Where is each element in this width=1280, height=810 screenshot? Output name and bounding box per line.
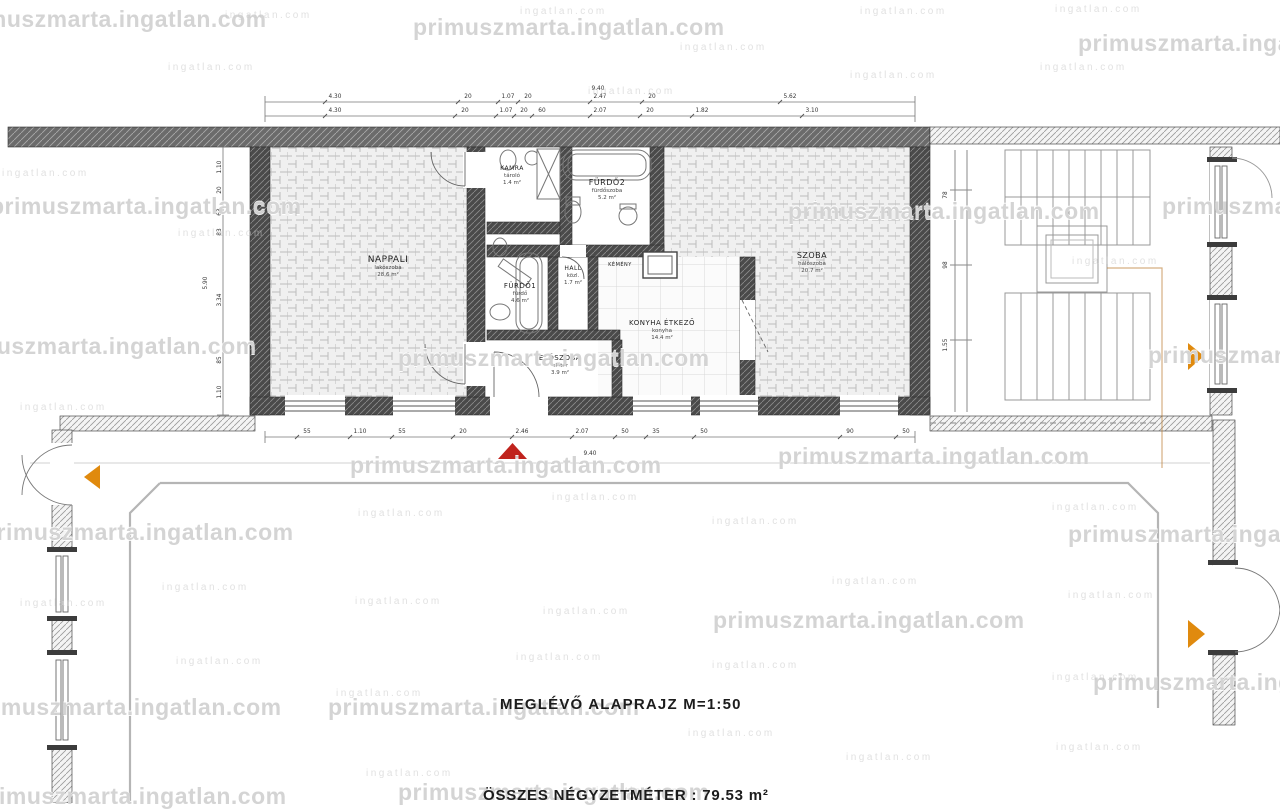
dimension-number: 2.07 [576, 429, 589, 435]
stairwell-separation-wall [910, 147, 930, 415]
dimension-number: 1.10 [217, 160, 223, 173]
orange-arrow-left [84, 465, 100, 489]
room-label: FÜRDŐ1 [504, 281, 536, 290]
dimension-number: 1.82 [696, 108, 709, 114]
dimension-number: 20 [461, 108, 469, 114]
dimension-number: 4.30 [329, 94, 342, 100]
left-flat-wall [250, 147, 270, 415]
orange-arrow-right-upper [1188, 343, 1204, 370]
room-sublabel: 3.9 m² [551, 369, 569, 376]
courtyard-outline [30, 463, 1210, 803]
dimension-number: 5.62 [784, 94, 797, 100]
room-label: HALL [564, 265, 581, 272]
sink-furdo1 [490, 304, 510, 320]
dimension-number: 83 [217, 228, 223, 236]
dimension-number: 1.55 [943, 338, 949, 351]
room-label: NAPPALI [368, 255, 409, 265]
nappali-floor [270, 147, 467, 397]
dimension-number: 2.46 [516, 429, 529, 435]
floor-plan-image: NAPPALIlakószoba28.6 m²KAMRAtároló1.4 m²… [0, 0, 1280, 803]
dimension-number: 50 [902, 429, 910, 435]
room-sublabel: 1.7 m² [564, 279, 582, 286]
room-sublabel: 28.6 m² [377, 271, 399, 278]
dimension-number: 60 [538, 108, 546, 114]
plan-title: MEGLÉVŐ ALAPRAJZ M=1:50 [500, 696, 742, 713]
dimension-number: 2.07 [594, 108, 607, 114]
orange-arrow-right-lower [1188, 620, 1205, 648]
stairs-lower-flight [1005, 293, 1150, 400]
room-sublabel: 14.4 m² [651, 334, 673, 341]
room-sublabel: hálószoba [798, 260, 826, 267]
room-label: FÜRDŐ2 [589, 177, 626, 187]
room-sublabel: 5.2 m² [598, 194, 616, 201]
room-label: KONYHA ÉTKEZŐ [629, 318, 695, 327]
dimension-number: 1.07 [502, 94, 515, 100]
dimension-number: 98 [943, 261, 949, 269]
top-facade-wall [8, 127, 930, 147]
dimension-number: 2.47 [594, 94, 607, 100]
dimension-number: 55 [303, 429, 311, 435]
dimension-number: 20 [524, 94, 532, 100]
room-sublabel: fürdő [513, 291, 528, 297]
room-label: ELŐSZOBA [539, 353, 581, 362]
dimension-number: 90 [846, 429, 854, 435]
dimension-number: 3.34 [217, 293, 223, 306]
dimension-number: 50 [621, 429, 629, 435]
dimension-number: 35 [652, 429, 660, 435]
dimension-number: 78 [943, 191, 949, 199]
dimension-number: 85 [217, 356, 223, 364]
elevator-shaft [1037, 226, 1107, 292]
dimension-number: 9.40 [592, 86, 605, 92]
room-sublabel: fürdőszoba [592, 188, 622, 194]
room-sublabel: előtér [552, 362, 569, 369]
room-sublabel: közl. [567, 273, 580, 279]
entrance-marker-triangle [498, 443, 527, 459]
kemeny-box [643, 252, 677, 278]
room-sublabel: 1.4 m² [503, 179, 521, 186]
room-label: KÉMÉNY [608, 260, 632, 268]
dimension-number: 20 [520, 108, 528, 114]
dimension-number: 20 [646, 108, 654, 114]
room-label: KAMRA [500, 165, 524, 172]
dimension-number: 20 [648, 94, 656, 100]
dimension-number: 9.40 [584, 451, 597, 457]
chimney-shaft [537, 149, 560, 199]
room-sublabel: konyha [652, 328, 672, 334]
top-right-wall [930, 127, 1280, 144]
dimension-number: 1.10 [354, 429, 367, 435]
room-label: SZOBA [797, 251, 827, 260]
dimension-number: 20 [464, 94, 472, 100]
room-sublabel: 4.6 m² [511, 297, 529, 304]
dimension-number: 50 [700, 429, 708, 435]
dimension-number: 63 [217, 208, 223, 216]
route-line [1107, 268, 1162, 468]
room-sublabel: tároló [504, 172, 521, 179]
dimension-number: 3.10 [806, 108, 819, 114]
dimension-number: 55 [398, 429, 406, 435]
dimension-number: 1.10 [217, 385, 223, 398]
sink-furdo2 [619, 207, 637, 225]
dimension-number: 5.90 [203, 276, 209, 289]
dimension-number: 1.07 [500, 108, 513, 114]
room-sublabel: lakószoba [374, 264, 401, 271]
dimension-number: 20 [217, 186, 223, 194]
room-sublabel: 20.7 m² [801, 267, 823, 274]
floor-plan-drawing: NAPPALIlakószoba28.6 m²KAMRAtároló1.4 m²… [0, 0, 1280, 803]
dimension-number: 20 [459, 429, 467, 435]
dimension-number: 4.30 [329, 108, 342, 114]
bottom-flat-wall [250, 397, 930, 415]
total-area-label: ÖSSZES NÉGYZETMÉTER : 79.53 m² [483, 787, 769, 804]
